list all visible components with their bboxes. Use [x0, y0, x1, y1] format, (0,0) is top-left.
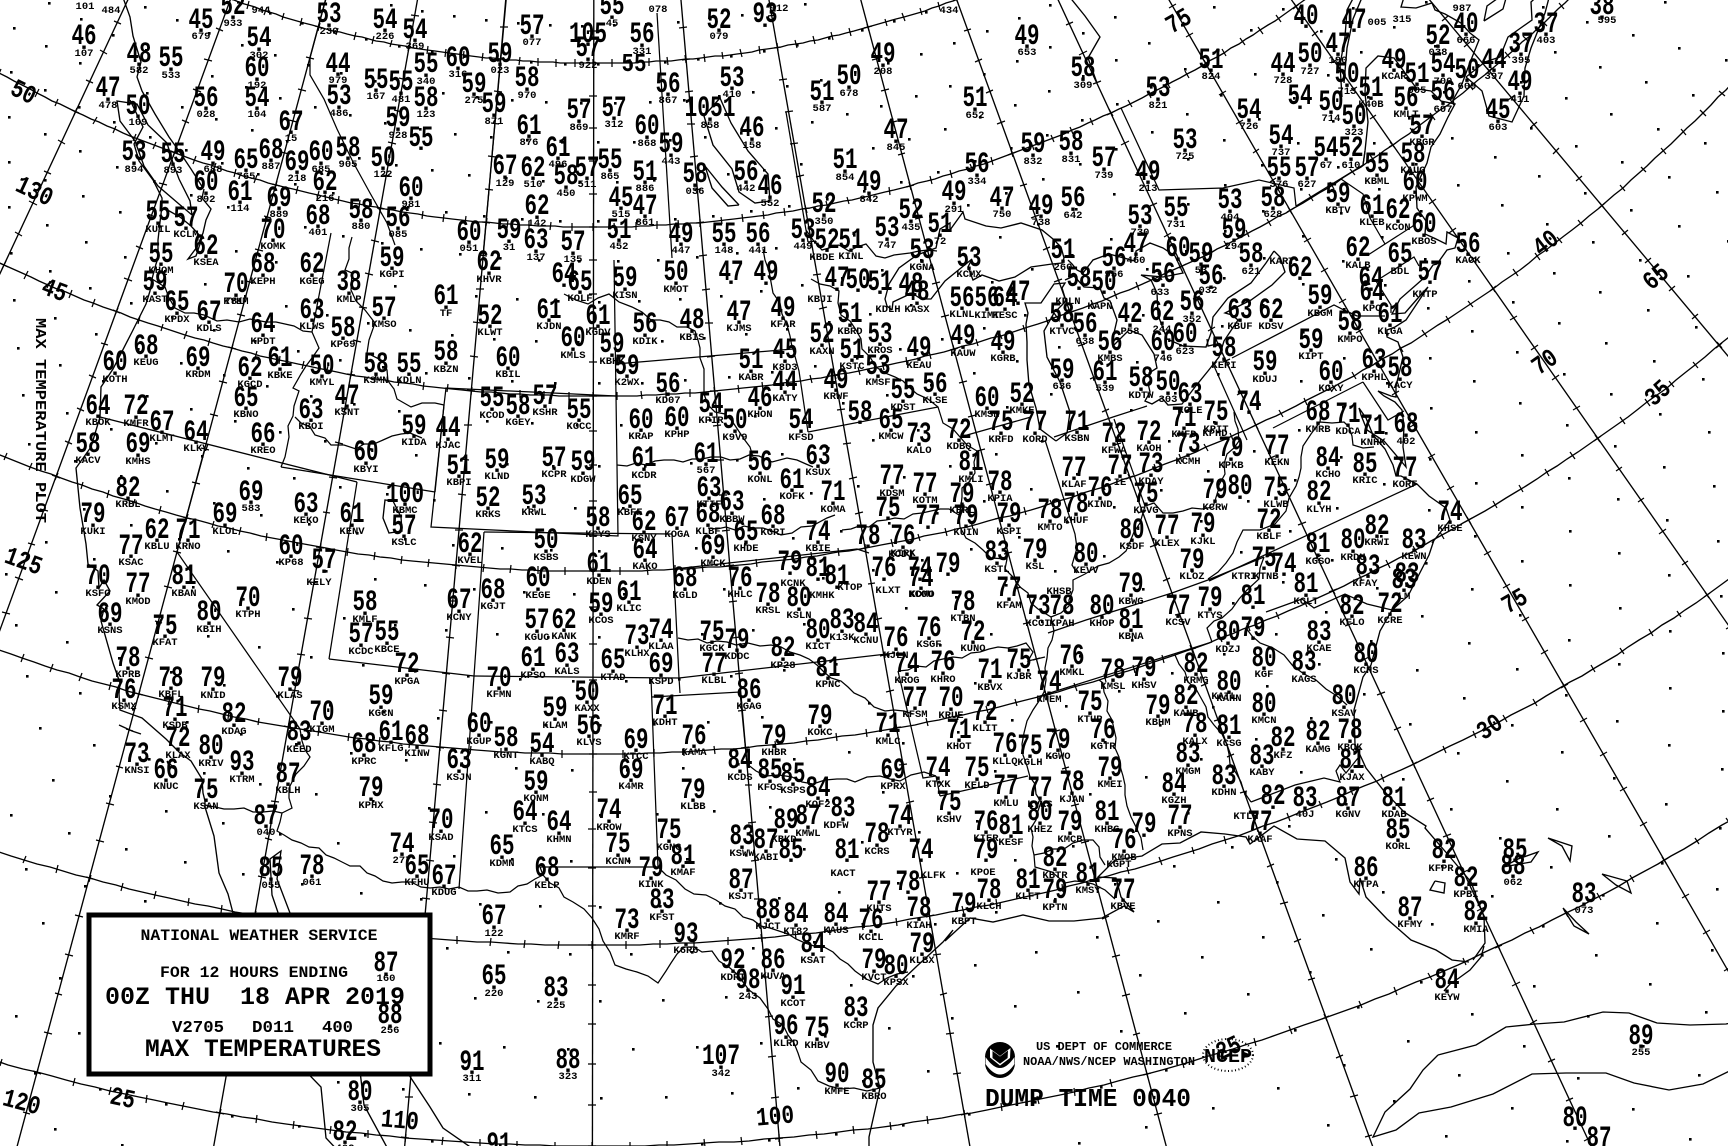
svg-text:KSBN: KSBN	[1064, 433, 1089, 445]
svg-text:KPRC: KPRC	[351, 756, 377, 768]
svg-text:122: 122	[485, 928, 504, 940]
svg-text:FOR 12 HOURS ENDING: FOR 12 HOURS ENDING	[160, 964, 348, 982]
svg-text:892: 892	[197, 194, 216, 206]
svg-text:KLCH: KLCH	[976, 901, 1001, 913]
svg-text:KSLC: KSLC	[391, 537, 417, 549]
svg-text:KCDS: KCDS	[727, 772, 752, 784]
svg-text:KBZN: KBZN	[433, 364, 458, 376]
svg-text:KINW: KINW	[404, 748, 430, 760]
svg-text:KCLL: KCLL	[858, 932, 883, 944]
svg-text:MAX TEMPERATURES: MAX TEMPERATURES	[145, 1035, 381, 1064]
svg-text:KESF: KESF	[998, 837, 1023, 849]
svg-text:867: 867	[659, 95, 678, 107]
svg-text:KAMG: KAMG	[1305, 744, 1330, 756]
svg-text:KRSL: KRSL	[755, 605, 780, 617]
svg-text:831: 831	[1062, 154, 1081, 166]
svg-text:114: 114	[231, 203, 250, 215]
svg-text:944: 944	[252, 5, 271, 17]
svg-text:KTRM: KTRM	[229, 774, 254, 786]
svg-text:KHUF: KHUF	[1063, 515, 1088, 527]
svg-text:100: 100	[755, 1100, 795, 1133]
svg-text:746: 746	[1154, 353, 1173, 365]
svg-text:KTPA: KTPA	[1353, 879, 1379, 891]
svg-text:KDTW: KDTW	[1128, 390, 1154, 402]
svg-text:832: 832	[1024, 156, 1043, 168]
svg-text:KDGW: KDGW	[570, 474, 596, 486]
svg-text:869: 869	[570, 122, 589, 134]
svg-text:137: 137	[527, 252, 546, 264]
svg-text:KLEX: KLEX	[1154, 538, 1180, 550]
svg-text:KRWF: KRWF	[823, 391, 848, 403]
svg-text:KESC: KESC	[992, 310, 1018, 322]
svg-text:KLSE: KLSE	[922, 395, 947, 407]
svg-text:KFHU: KFHU	[404, 877, 429, 889]
svg-text:077: 077	[523, 37, 542, 49]
svg-text:KGPT: KGPT	[1106, 859, 1131, 871]
svg-text:KGNV: KGNV	[1335, 809, 1361, 821]
svg-text:KASX: KASX	[904, 304, 930, 316]
svg-text:678: 678	[840, 88, 859, 100]
svg-text:KFZ: KFZ	[1274, 750, 1293, 762]
svg-text:KFST: KFST	[649, 912, 674, 924]
svg-text:KSPS: KSPS	[780, 785, 805, 797]
svg-text:610: 610	[1342, 160, 1361, 172]
svg-text:KDLH: KDLH	[875, 304, 900, 316]
svg-text:609: 609	[1458, 81, 1477, 93]
svg-text:KBTR: KBTR	[1042, 870, 1068, 882]
svg-text:KBPT: KBPT	[951, 916, 976, 928]
svg-text:KPGA: KPGA	[394, 676, 420, 688]
svg-text:KLWS: KLWS	[299, 321, 324, 333]
svg-text:KEVV: KEVV	[1073, 565, 1099, 577]
svg-text:KPIR: KPIR	[698, 415, 724, 427]
svg-text:KMRF: KMRF	[614, 931, 639, 943]
svg-text:KJCT: KJCT	[755, 921, 780, 933]
svg-text:KLBX: KLBX	[909, 955, 935, 967]
svg-text:122: 122	[374, 169, 393, 181]
svg-text:403: 403	[1537, 35, 1556, 47]
svg-text:KLWT: KLWT	[477, 327, 502, 339]
svg-text:KPAH: KPAH	[1049, 618, 1074, 630]
svg-text:KBVX: KBVX	[977, 682, 1003, 694]
svg-text:032: 032	[1199, 285, 1218, 297]
svg-text:887: 887	[262, 161, 281, 173]
svg-text:KPSO: KPSO	[520, 670, 545, 682]
svg-text:078: 078	[649, 4, 668, 16]
svg-text:KGEG: KGEG	[299, 276, 324, 288]
svg-text:KMHS: KMHS	[125, 456, 150, 468]
svg-text:KMKL: KMKL	[1059, 667, 1084, 679]
svg-text:824: 824	[1202, 71, 1221, 83]
svg-text:40: 40	[1294, 0, 1319, 34]
svg-text:KAXN: KAXN	[809, 346, 834, 358]
svg-text:KGSO: KGSO	[1305, 556, 1330, 568]
svg-text:KGRI: KGRI	[760, 527, 785, 539]
svg-text:666: 666	[1457, 35, 1476, 47]
svg-text:74: 74	[1237, 386, 1262, 420]
svg-text:KCGI: KCGI	[1025, 618, 1050, 630]
svg-text:KBVE: KBVE	[1110, 901, 1135, 913]
svg-text:KCSG: KCSG	[1216, 738, 1241, 750]
svg-text:636: 636	[1053, 381, 1072, 393]
svg-text:KSEA: KSEA	[193, 257, 219, 269]
svg-text:KUIN: KUIN	[953, 527, 978, 539]
svg-text:KPHL: KPHL	[1361, 372, 1386, 384]
svg-text:KHMN: KHMN	[546, 834, 571, 846]
svg-text:638: 638	[1076, 336, 1095, 348]
svg-text:KFMY: KFMY	[1397, 919, 1423, 931]
svg-text:KBLH: KBLH	[275, 785, 300, 797]
svg-text:KRKS: KRKS	[475, 509, 500, 521]
svg-text:582: 582	[130, 65, 149, 77]
svg-text:KRWL: KRWL	[521, 507, 546, 519]
svg-text:38: 38	[1590, 0, 1615, 24]
svg-text:TF: TF	[440, 308, 453, 320]
svg-text:KP68: KP68	[278, 557, 303, 569]
svg-text:KSL: KSL	[1026, 561, 1045, 573]
svg-text:226: 226	[376, 31, 395, 43]
svg-text:KFAY: KFAY	[1352, 578, 1378, 590]
svg-text:726: 726	[1240, 121, 1259, 133]
svg-text:KDUJ: KDUJ	[1252, 374, 1277, 386]
svg-text:628: 628	[1264, 209, 1283, 221]
svg-text:845: 845	[887, 142, 906, 154]
svg-text:KONL: KONL	[747, 474, 772, 486]
svg-text:KCSV: KCSV	[1165, 617, 1191, 629]
svg-text:402: 402	[1397, 436, 1416, 448]
svg-text:397: 397	[1485, 71, 1504, 83]
svg-text:KSDF: KSDF	[1119, 541, 1144, 553]
svg-text:KGF: KGF	[1255, 669, 1274, 681]
svg-text:45: 45	[606, 18, 619, 30]
svg-text:KELP: KELP	[534, 880, 559, 892]
svg-text:109: 109	[129, 117, 148, 129]
svg-text:KCXY: KCXY	[1318, 383, 1344, 395]
svg-text:58: 58	[1067, 262, 1092, 296]
svg-text:BDL: BDL	[1391, 266, 1410, 278]
svg-text:104: 104	[248, 109, 267, 121]
svg-text:KBKE: KBKE	[267, 370, 292, 382]
svg-text:KDUG: KDUG	[431, 887, 456, 899]
svg-text:KUIL: KUIL	[145, 224, 170, 236]
svg-text:KOGA: KOGA	[664, 529, 690, 541]
svg-text:KSHV: KSHV	[936, 814, 962, 826]
svg-text:KCNM: KCNM	[605, 856, 630, 868]
svg-text:KLFK: KLFK	[920, 870, 946, 882]
svg-text:652: 652	[966, 110, 985, 122]
svg-text:727: 727	[1301, 66, 1320, 78]
svg-text:KSMN: KSMN	[363, 375, 388, 387]
svg-text:KMAF: KMAF	[670, 867, 695, 879]
svg-text:IE: IE	[1114, 477, 1127, 489]
svg-text:213: 213	[1139, 183, 1158, 195]
svg-text:KLLQ: KLLQ	[992, 756, 1017, 768]
svg-text:KDEN: KDEN	[586, 576, 611, 588]
svg-text:KCRE: KCRE	[1377, 615, 1402, 627]
svg-text:KCNY: KCNY	[446, 612, 472, 624]
svg-text:442: 442	[737, 183, 756, 195]
svg-text:738: 738	[1032, 217, 1051, 229]
svg-text:731: 731	[1167, 219, 1186, 231]
svg-text:KGRB: KGRB	[990, 353, 1016, 365]
svg-text:912: 912	[770, 3, 789, 15]
svg-text:80: 80	[1563, 1102, 1588, 1136]
svg-text:KMEI: KMEI	[1097, 779, 1122, 791]
svg-text:KMYL: KMYL	[309, 377, 334, 389]
svg-text:KDMN: KDMN	[489, 858, 514, 870]
svg-text:KTLH: KTLH	[1233, 811, 1258, 823]
svg-text:062: 062	[1504, 877, 1523, 889]
svg-text:31: 31	[503, 242, 516, 254]
svg-text:KMIA: KMIA	[1463, 924, 1489, 936]
svg-text:KPDX: KPDX	[164, 314, 190, 326]
svg-text:781: 781	[225, 296, 244, 308]
svg-text:484: 484	[102, 5, 121, 17]
svg-text:894: 894	[125, 164, 144, 176]
svg-text:KCYS: KCYS	[585, 529, 610, 541]
svg-text:KBHM: KBHM	[1145, 717, 1170, 729]
svg-text:KMOT: KMOT	[663, 284, 688, 296]
svg-text:KENV: KENV	[339, 526, 365, 538]
svg-text:KAPN: KAPN	[1087, 301, 1112, 313]
svg-text:KBIS: KBIS	[679, 332, 704, 344]
svg-text:861: 861	[636, 217, 655, 229]
svg-text:411: 411	[1511, 94, 1530, 106]
svg-text:230: 230	[320, 26, 339, 38]
svg-text:KLXT: KLXT	[875, 585, 900, 597]
svg-text:123: 123	[417, 109, 436, 121]
svg-text:305: 305	[351, 1103, 370, 1115]
svg-text:KMSF: KMSF	[865, 377, 890, 389]
svg-text:KORD: KORD	[1022, 434, 1047, 446]
svg-text:KSAT: KSAT	[800, 955, 825, 967]
svg-text:KBNA: KBNA	[1118, 631, 1144, 643]
svg-text:633: 633	[1151, 287, 1170, 299]
svg-text:KCMH: KCMH	[1175, 456, 1200, 468]
svg-text:893: 893	[164, 165, 183, 177]
svg-text:KBGM: KBGM	[1307, 308, 1332, 320]
svg-text:K6R6: K6R6	[673, 945, 698, 957]
svg-text:KDMO: KDMO	[909, 589, 934, 601]
svg-text:KLHX: KLHX	[624, 648, 650, 660]
svg-text:871: 871	[485, 116, 504, 128]
svg-text:331: 331	[633, 46, 652, 58]
svg-text:107: 107	[75, 48, 94, 60]
svg-text:342: 342	[712, 1068, 731, 1080]
svg-text:KTAD: KTAD	[600, 672, 625, 684]
svg-text:868: 868	[638, 138, 657, 150]
svg-text:KRIC: KRIC	[1352, 475, 1378, 487]
svg-text:KLKV: KLKV	[183, 443, 209, 455]
svg-text:KMTO: KMTO	[1037, 522, 1062, 534]
svg-text:KSPD: KSPD	[648, 676, 673, 688]
svg-text:KAUS: KAUS	[823, 925, 848, 937]
svg-text:50: 50	[1092, 266, 1117, 300]
svg-text:KFLO: KFLO	[1339, 617, 1364, 629]
svg-text:627: 627	[1298, 179, 1317, 191]
svg-text:KHDE: KHDE	[733, 543, 758, 555]
svg-text:KCDC: KCDC	[348, 646, 374, 658]
svg-text:KLIC: KLIC	[616, 603, 642, 615]
svg-text:167: 167	[367, 91, 386, 103]
svg-text:KSAN: KSAN	[193, 801, 218, 813]
svg-text:KTVC: KTVC	[1049, 326, 1075, 338]
svg-text:KIDA: KIDA	[401, 437, 427, 449]
svg-text:KMCK: KMCK	[700, 558, 726, 570]
svg-text:KRNO: KRNO	[175, 541, 200, 553]
svg-text:KJMS: KJMS	[726, 323, 751, 335]
svg-text:KSMX: KSMX	[111, 701, 137, 713]
svg-text:101: 101	[76, 1, 95, 13]
svg-text:603: 603	[1489, 122, 1508, 134]
svg-text:KBJI: KBJI	[807, 294, 832, 306]
svg-text:NOAA/NWS/NCEP WASHINGTON: NOAA/NWS/NCEP WASHINGTON	[1023, 1055, 1195, 1069]
svg-text:KPHX: KPHX	[358, 800, 384, 812]
svg-text:KLAS: KLAS	[277, 690, 302, 702]
svg-text:15: 15	[285, 133, 298, 145]
svg-text:KLOL: KLOL	[212, 526, 237, 538]
svg-text:KALO: KALO	[906, 445, 931, 457]
svg-text:KEPH: KEPH	[250, 276, 275, 288]
svg-text:880: 880	[352, 221, 371, 233]
svg-text:KJBR: KJBR	[1006, 671, 1032, 683]
svg-text:US DEPT OF COMMERCE: US DEPT OF COMMERCE	[1036, 1040, 1172, 1054]
svg-text:85: 85	[779, 834, 804, 868]
svg-text:KBOI: KBOI	[298, 421, 323, 433]
svg-text:KEKO: KEKO	[293, 515, 318, 527]
svg-text:KHON: KHON	[747, 409, 772, 421]
svg-text:KMCW: KMCW	[878, 431, 904, 443]
svg-text:79: 79	[974, 834, 999, 868]
svg-text:KCNU: KCNU	[853, 635, 878, 647]
svg-text:KOTH: KOTH	[102, 374, 127, 386]
svg-text:KRDM: KRDM	[185, 369, 210, 381]
svg-text:858: 858	[701, 120, 720, 132]
svg-text:933: 933	[224, 18, 243, 30]
svg-text:KORL: KORL	[1385, 841, 1410, 853]
svg-text:821: 821	[1149, 100, 1168, 112]
svg-text:78: 78	[856, 520, 881, 554]
svg-text:085: 085	[389, 229, 408, 241]
svg-text:KMTP: KMTP	[1412, 289, 1437, 301]
svg-text:KLMT: KLMT	[149, 433, 174, 445]
svg-text:KGNT: KGNT	[493, 750, 518, 762]
svg-text:KFOS: KFOS	[757, 782, 782, 794]
svg-text:74: 74	[909, 834, 934, 868]
svg-text:KCOS: KCOS	[588, 615, 613, 627]
svg-text:KABI: KABI	[753, 852, 778, 864]
svg-text:905: 905	[339, 159, 358, 171]
svg-text:255: 255	[1632, 1047, 1651, 1059]
svg-text:714: 714	[1322, 113, 1341, 125]
svg-text:KORF: KORF	[1392, 479, 1417, 491]
svg-text:KBTV: KBTV	[1325, 205, 1351, 217]
svg-text:225: 225	[547, 1000, 566, 1012]
svg-text:158: 158	[743, 140, 762, 152]
svg-text:KBAN: KBAN	[171, 588, 196, 600]
svg-text:243: 243	[739, 991, 758, 1003]
svg-text:533: 533	[162, 70, 181, 82]
svg-text:679: 679	[192, 31, 211, 43]
svg-text:DUMP TIME 0040: DUMP TIME 0040	[985, 1084, 1191, 1114]
svg-text:478: 478	[99, 100, 118, 112]
svg-text:72: 72	[934, 236, 947, 248]
svg-text:KGEY: KGEY	[505, 417, 531, 429]
svg-text:00Z THU 18 APR 2019: 00Z THU 18 APR 2019	[105, 983, 405, 1012]
svg-text:334: 334	[968, 176, 987, 188]
svg-text:KFSM: KFSM	[902, 709, 927, 721]
svg-text:40J: 40J	[1296, 809, 1315, 821]
svg-text:KEYW: KEYW	[1434, 992, 1460, 1004]
svg-text:KDHT: KDHT	[652, 717, 677, 729]
svg-text:922: 922	[579, 60, 598, 72]
svg-text:036: 036	[686, 186, 705, 198]
svg-text:KRBL: KRBL	[115, 499, 140, 511]
svg-text:073: 073	[1575, 905, 1594, 917]
svg-text:KDAG: KDAG	[221, 726, 246, 738]
svg-text:KSHR: KSHR	[532, 407, 558, 419]
svg-text:K9V9: K9V9	[722, 432, 747, 444]
svg-text:KDFW: KDFW	[823, 820, 849, 832]
svg-text:KTCS: KTCS	[512, 824, 537, 836]
svg-text:435: 435	[902, 222, 921, 234]
svg-text:256: 256	[381, 1025, 400, 1037]
svg-text:KABY: KABY	[1249, 767, 1275, 779]
svg-text:KBPI: KBPI	[446, 477, 471, 489]
svg-text:KDSV: KDSV	[1258, 321, 1284, 333]
svg-text:KGLD: KGLD	[672, 590, 697, 602]
svg-text:055: 055	[262, 880, 281, 892]
svg-text:KHVR: KHVR	[476, 274, 502, 286]
svg-text:623: 623	[1176, 346, 1195, 358]
svg-text:450: 450	[557, 188, 576, 200]
svg-text:KJDN: KJDN	[536, 321, 561, 333]
svg-text:552: 552	[761, 198, 780, 210]
svg-text:KLVS: KLVS	[576, 737, 601, 749]
svg-text:KRFD: KRFD	[988, 434, 1013, 446]
svg-text:KSNS: KSNS	[97, 625, 122, 637]
svg-text:KMFE: KMFE	[824, 1086, 849, 1098]
svg-text:67: 67	[1320, 160, 1333, 172]
svg-text:KMPO: KMPO	[1337, 334, 1362, 346]
svg-text:315: 315	[1393, 14, 1412, 26]
svg-text:KISN: KISN	[612, 290, 637, 302]
svg-text:653: 653	[1018, 47, 1037, 59]
svg-text:KLYH: KLYH	[1306, 504, 1331, 516]
svg-text:079: 079	[710, 31, 729, 43]
svg-text:452: 452	[610, 241, 629, 253]
svg-text:79: 79	[1241, 612, 1266, 646]
svg-text:KRWI: KRWI	[1364, 537, 1389, 549]
svg-text:642: 642	[1064, 210, 1083, 222]
svg-text:KOKC: KOKC	[807, 727, 833, 739]
svg-text:KLBL: KLBL	[701, 675, 726, 687]
svg-text:KMRB: KMRB	[1305, 424, 1331, 436]
svg-text:KGPI: KGPI	[379, 269, 404, 281]
svg-text:023: 023	[491, 65, 510, 77]
svg-text:842: 842	[860, 194, 879, 206]
svg-text:KERI: KERI	[1211, 360, 1236, 372]
svg-text:KHOP: KHOP	[1089, 618, 1114, 630]
svg-text:539: 539	[1096, 383, 1115, 395]
svg-text:KAMA: KAMA	[681, 747, 707, 759]
svg-text:KCHS: KCHS	[1353, 665, 1378, 677]
svg-text:KP28: KP28	[770, 660, 795, 672]
svg-text:KCON: KCON	[1385, 222, 1410, 234]
svg-text:KFAM: KFAM	[996, 600, 1021, 612]
svg-text:K2WX: K2WX	[614, 377, 640, 389]
svg-text:KGCC: KGCC	[566, 421, 592, 433]
